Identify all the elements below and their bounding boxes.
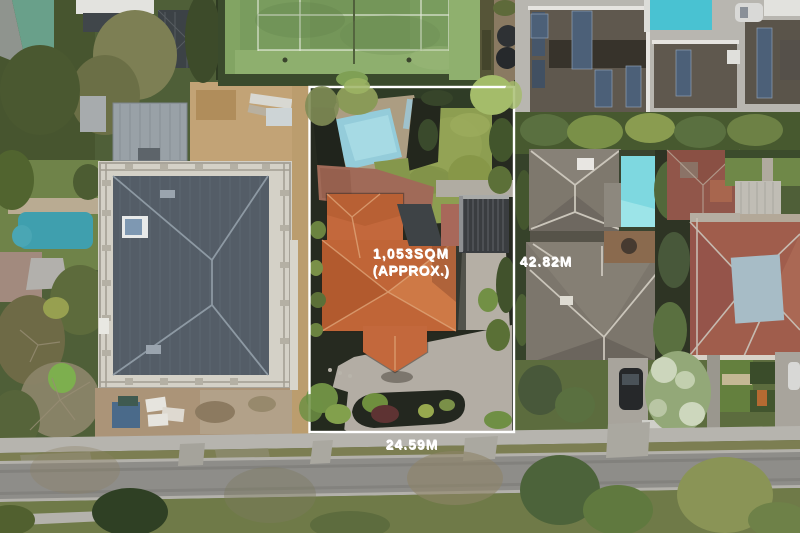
svg-text:(APPROX.): (APPROX.) [373, 262, 450, 278]
svg-text:24.59M: 24.59M [386, 436, 439, 452]
svg-text:1,053SQM: 1,053SQM [373, 245, 450, 261]
svg-text:42.82M: 42.82M [520, 253, 573, 269]
